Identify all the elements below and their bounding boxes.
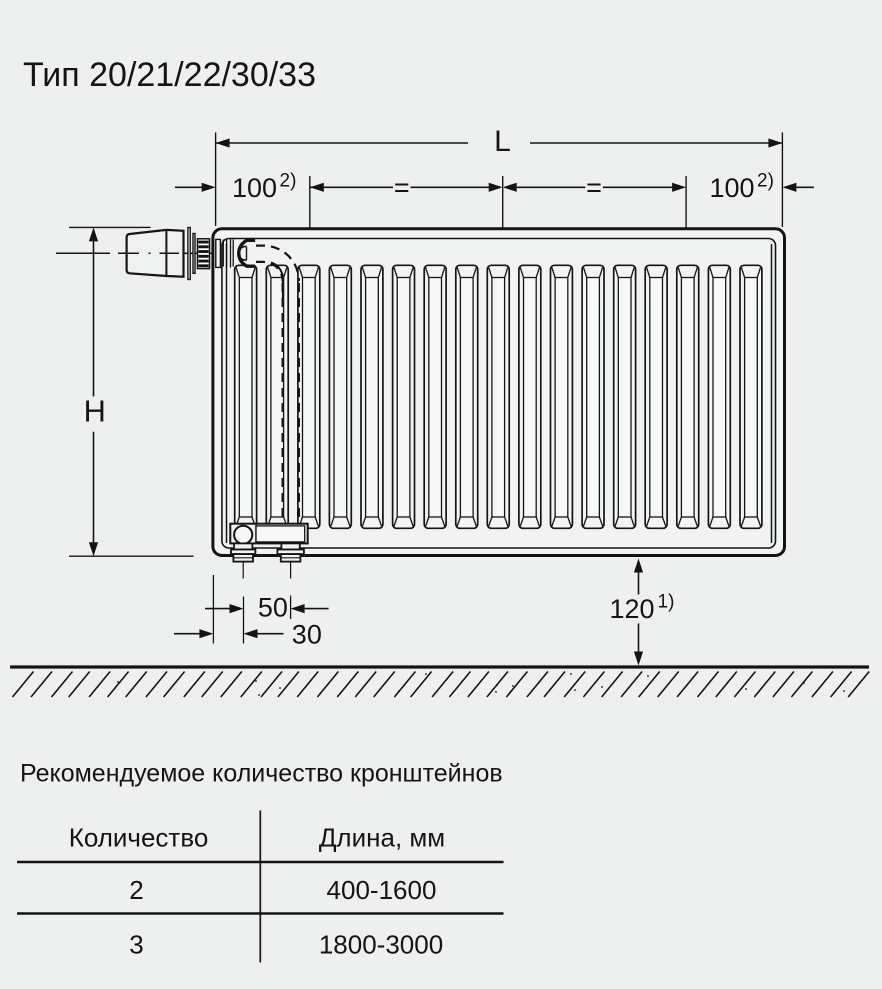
svg-text:2): 2) (757, 171, 774, 192)
svg-text:L: L (494, 125, 511, 158)
svg-text:50: 50 (258, 592, 288, 622)
svg-text:100: 100 (232, 173, 277, 203)
svg-text:Тип 20/21/22/30/33: Тип 20/21/22/30/33 (23, 56, 316, 94)
svg-text:30: 30 (292, 619, 322, 649)
svg-text:1): 1) (658, 592, 675, 613)
svg-text:120: 120 (610, 594, 655, 624)
svg-text:400-1600: 400-1600 (327, 875, 437, 905)
svg-text:Рекомендуемое количество кронш: Рекомендуемое количество кронштейнов (20, 760, 503, 788)
svg-text:1800-3000: 1800-3000 (319, 930, 443, 960)
svg-text:3: 3 (129, 930, 143, 960)
svg-text:2): 2) (280, 171, 297, 192)
svg-text:Количество: Количество (69, 823, 209, 853)
svg-text:=: = (394, 173, 410, 203)
svg-text:Длина, мм: Длина, мм (319, 823, 445, 853)
svg-text:=: = (586, 173, 602, 203)
svg-text:100: 100 (710, 173, 755, 203)
svg-text:2: 2 (129, 875, 143, 905)
svg-text:H: H (84, 394, 106, 429)
